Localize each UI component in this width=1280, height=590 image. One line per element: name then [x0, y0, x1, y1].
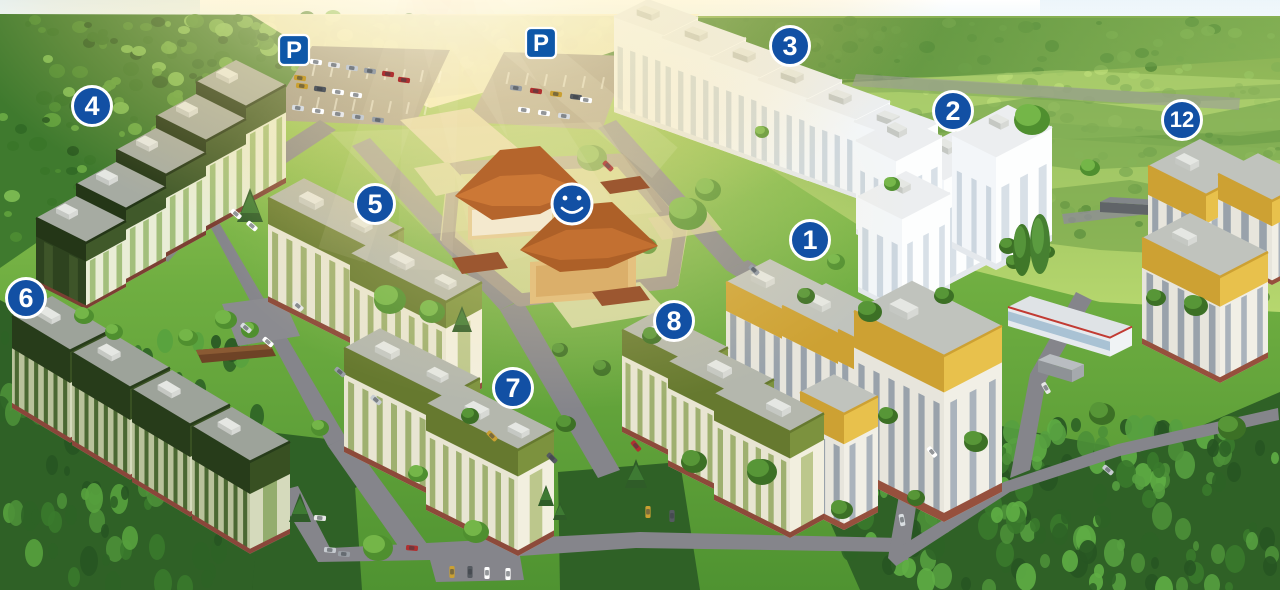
svg-text:12: 12	[1170, 107, 1194, 132]
svg-text:6: 6	[18, 283, 33, 313]
svg-text:4: 4	[84, 91, 99, 121]
svg-text:5: 5	[367, 189, 382, 219]
svg-text:2: 2	[945, 96, 960, 126]
svg-text:P: P	[533, 30, 549, 57]
svg-text:8: 8	[666, 306, 681, 336]
svg-text:7: 7	[505, 373, 520, 403]
svg-text:P: P	[286, 37, 302, 64]
svg-text:3: 3	[782, 31, 797, 61]
svg-text:1: 1	[802, 225, 817, 255]
